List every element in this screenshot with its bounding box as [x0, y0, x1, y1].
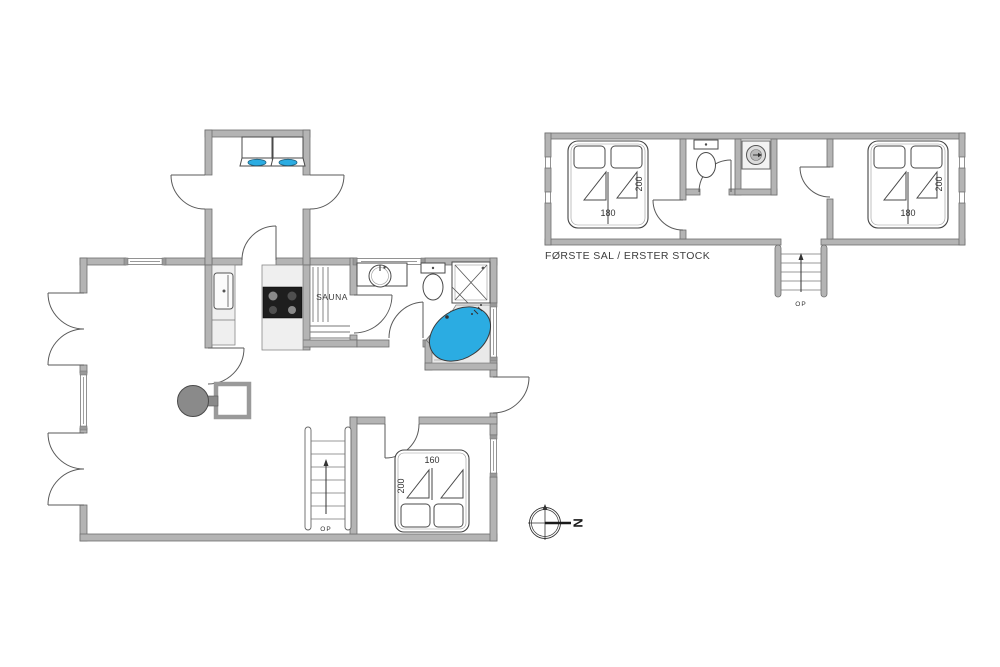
- stairs-up-label-first: OP: [795, 301, 806, 308]
- dryer-icon: [271, 137, 305, 166]
- sauna-label: SAUNA: [316, 292, 348, 302]
- bed-length-label: 200: [934, 176, 944, 191]
- fridge-icon: [214, 273, 233, 309]
- bed-ground-floor: 160 200: [395, 450, 469, 532]
- toilet-icon: [421, 263, 445, 300]
- compass-north-label: N: [571, 518, 586, 527]
- bed-width-label: 180: [600, 208, 615, 218]
- floorplan-page: SAUNA: [0, 0, 1000, 667]
- toilet-icon: [694, 140, 718, 178]
- pillow: [911, 146, 942, 168]
- first-floor-plan: OP 200 180 200 180 FØRSTE SAL / ERST: [545, 133, 965, 308]
- washing-machine-icon: [742, 141, 770, 169]
- floorplan-drawing: SAUNA: [0, 0, 1000, 667]
- wood-stove-icon: [178, 384, 250, 417]
- washing-machine-icon: [240, 137, 274, 166]
- first-floor-caption: FØRSTE SAL / ERSTER STOCK: [545, 250, 710, 262]
- bed-width-label: 160: [424, 455, 439, 465]
- ground-floor-plan: SAUNA: [48, 130, 529, 541]
- bed-width-label: 180: [900, 208, 915, 218]
- stairs-up-label-ground: OP: [320, 526, 331, 533]
- bed-first-floor-right: 200 180: [868, 141, 948, 228]
- pillow: [401, 504, 430, 527]
- cooktop-icon: [263, 287, 302, 318]
- sauna-room: SAUNA: [310, 267, 350, 338]
- laundry-appliances: [240, 137, 305, 166]
- kitchen: [212, 265, 303, 350]
- first-floor-bathroom: [694, 140, 770, 178]
- pillow: [574, 146, 605, 168]
- stairs-ground-floor: OP: [305, 427, 351, 533]
- bed-length-label: 200: [396, 478, 406, 493]
- pillow: [434, 504, 463, 527]
- bed-first-floor-left: 200 180: [568, 141, 648, 228]
- compass-rose: N: [528, 504, 586, 540]
- stairs-first-floor: OP: [775, 245, 827, 308]
- shower-icon: [452, 262, 490, 303]
- pillow: [874, 146, 905, 168]
- pillow: [611, 146, 642, 168]
- bed-length-label: 200: [634, 176, 644, 191]
- washbasin-icon: [357, 263, 407, 287]
